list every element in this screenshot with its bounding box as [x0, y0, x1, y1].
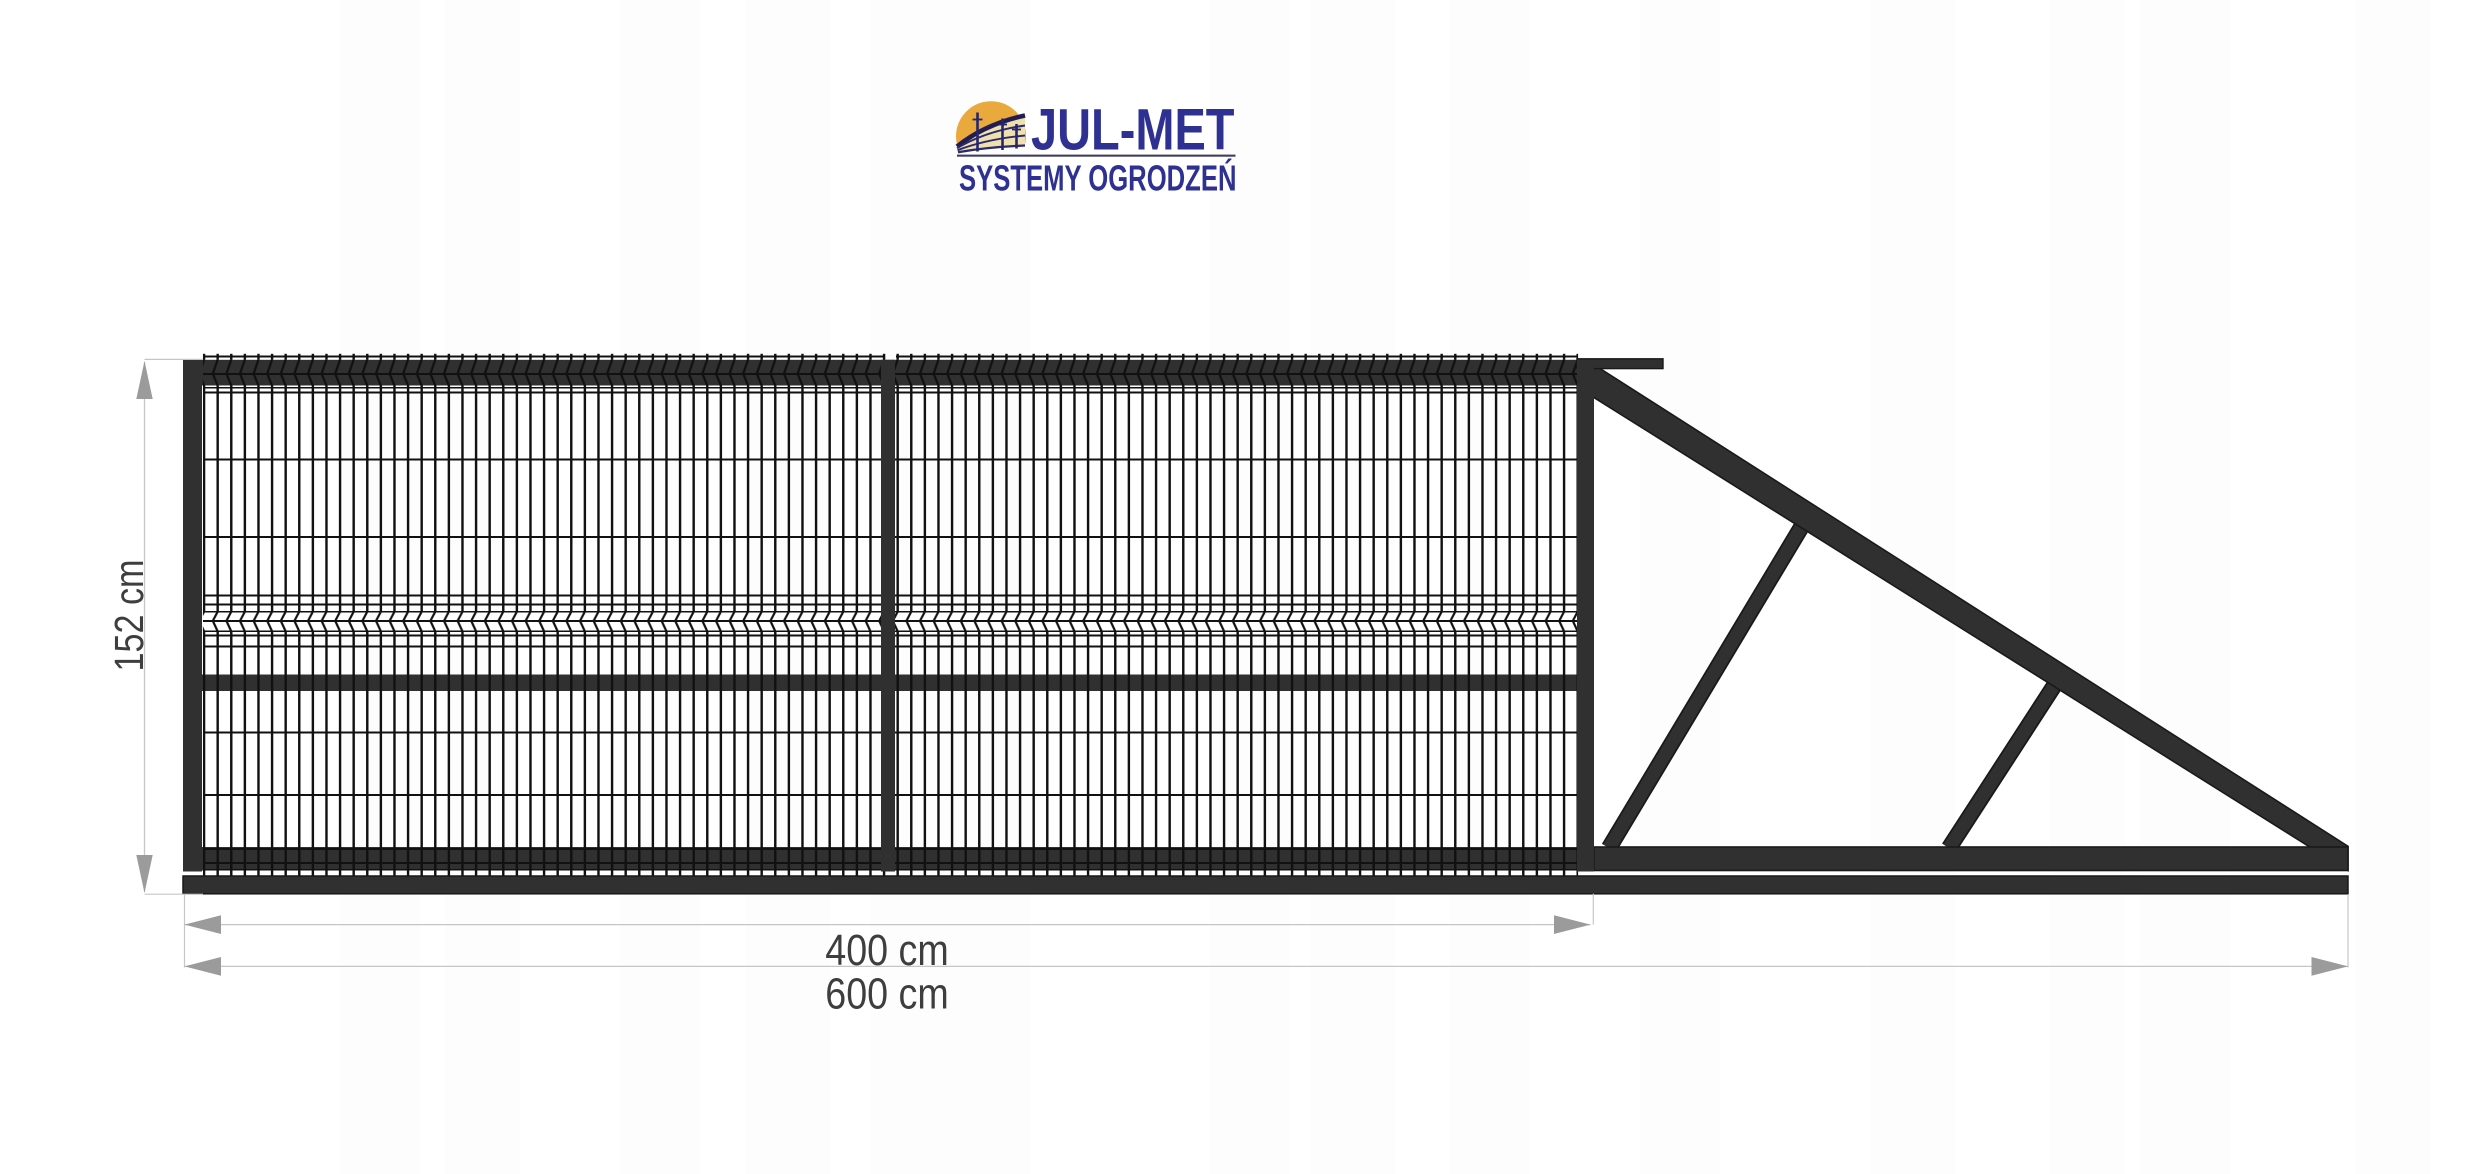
svg-text:400 cm: 400 cm	[825, 926, 949, 975]
svg-text:JUL-MET: JUL-MET	[1031, 97, 1235, 162]
svg-text:600 cm: 600 cm	[825, 970, 949, 1019]
svg-text:152 cm: 152 cm	[106, 560, 152, 672]
svg-text:SYSTEMY OGRODZEŃ: SYSTEMY OGRODZEŃ	[959, 158, 1237, 199]
